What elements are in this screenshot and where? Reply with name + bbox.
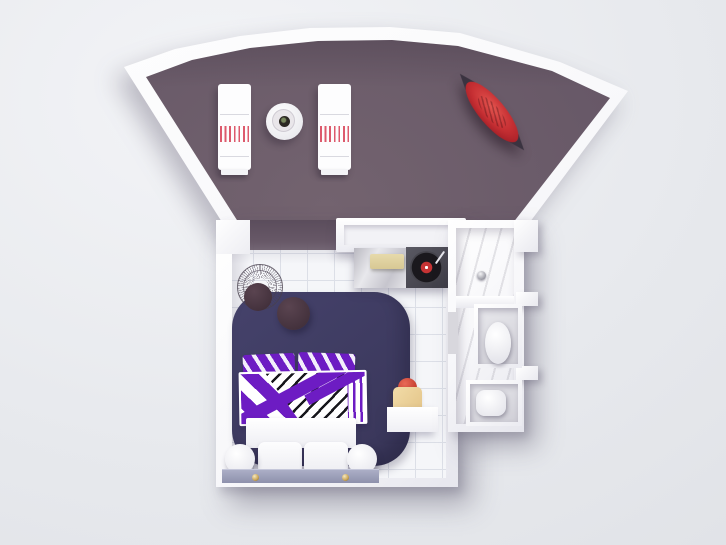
terrace-side-table: [266, 103, 303, 140]
terrace-doorway: [248, 220, 338, 250]
lounger-seam: [220, 156, 249, 157]
brass-knob: [252, 474, 259, 481]
lounger-stripe-cushion: [320, 126, 349, 142]
wall-bench: [222, 469, 379, 483]
wall-desk-shelf: [387, 407, 438, 432]
lounger-seam: [320, 114, 349, 115]
pouf: [277, 297, 310, 330]
wall-fin-top: [514, 220, 538, 252]
vinyl-record: [410, 251, 443, 284]
brass-knob: [342, 474, 349, 481]
lounger-foot-bar: [221, 169, 248, 175]
turntable: [406, 247, 448, 288]
sun-lounger-right: [318, 84, 351, 170]
marble-sideboard: [354, 248, 448, 288]
corner-wall-block: [216, 220, 250, 254]
sun-lounger-left: [218, 84, 251, 170]
lounger-seam: [320, 156, 349, 157]
shower-drain: [477, 271, 486, 280]
toilet: [476, 390, 506, 416]
lounger-foot-bar: [321, 169, 348, 175]
lounger-stripe-cushion: [220, 126, 249, 142]
wardrobe-recess: [344, 225, 458, 245]
lounger-seam: [220, 114, 249, 115]
wire-chair-seat: [244, 283, 272, 311]
table-plate: [279, 116, 290, 127]
bidet: [485, 322, 511, 364]
wall-fin-lower: [516, 366, 538, 380]
floorplan-render: [0, 0, 726, 545]
serving-tray: [370, 254, 404, 269]
bathroom-doorway: [448, 312, 458, 354]
